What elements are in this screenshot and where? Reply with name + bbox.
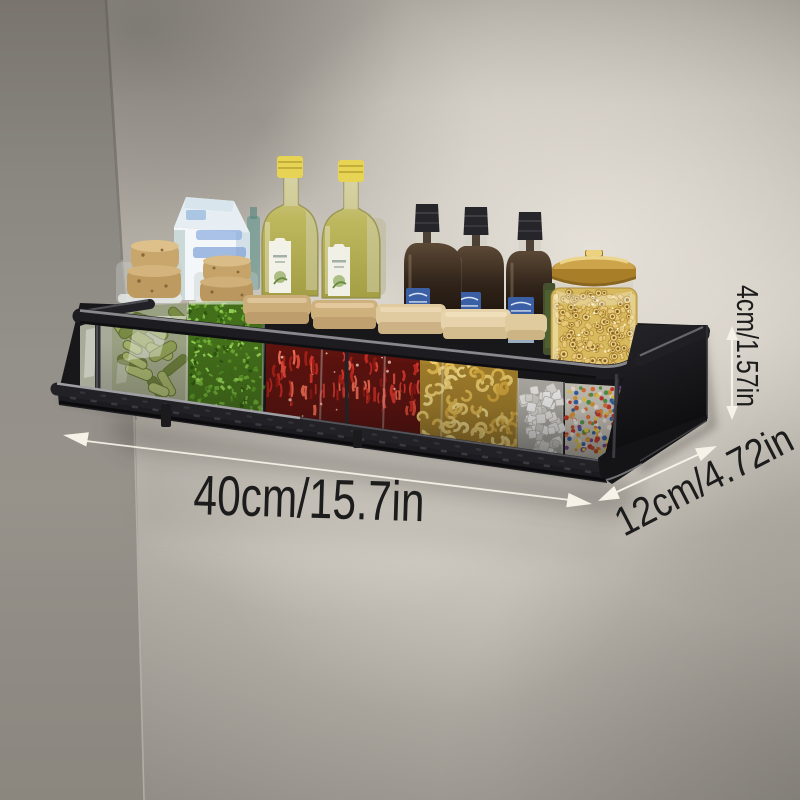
svg-text:40cm/15.7in: 40cm/15.7in xyxy=(193,463,426,533)
svg-text:4cm/1.57in: 4cm/1.57in xyxy=(730,285,765,407)
